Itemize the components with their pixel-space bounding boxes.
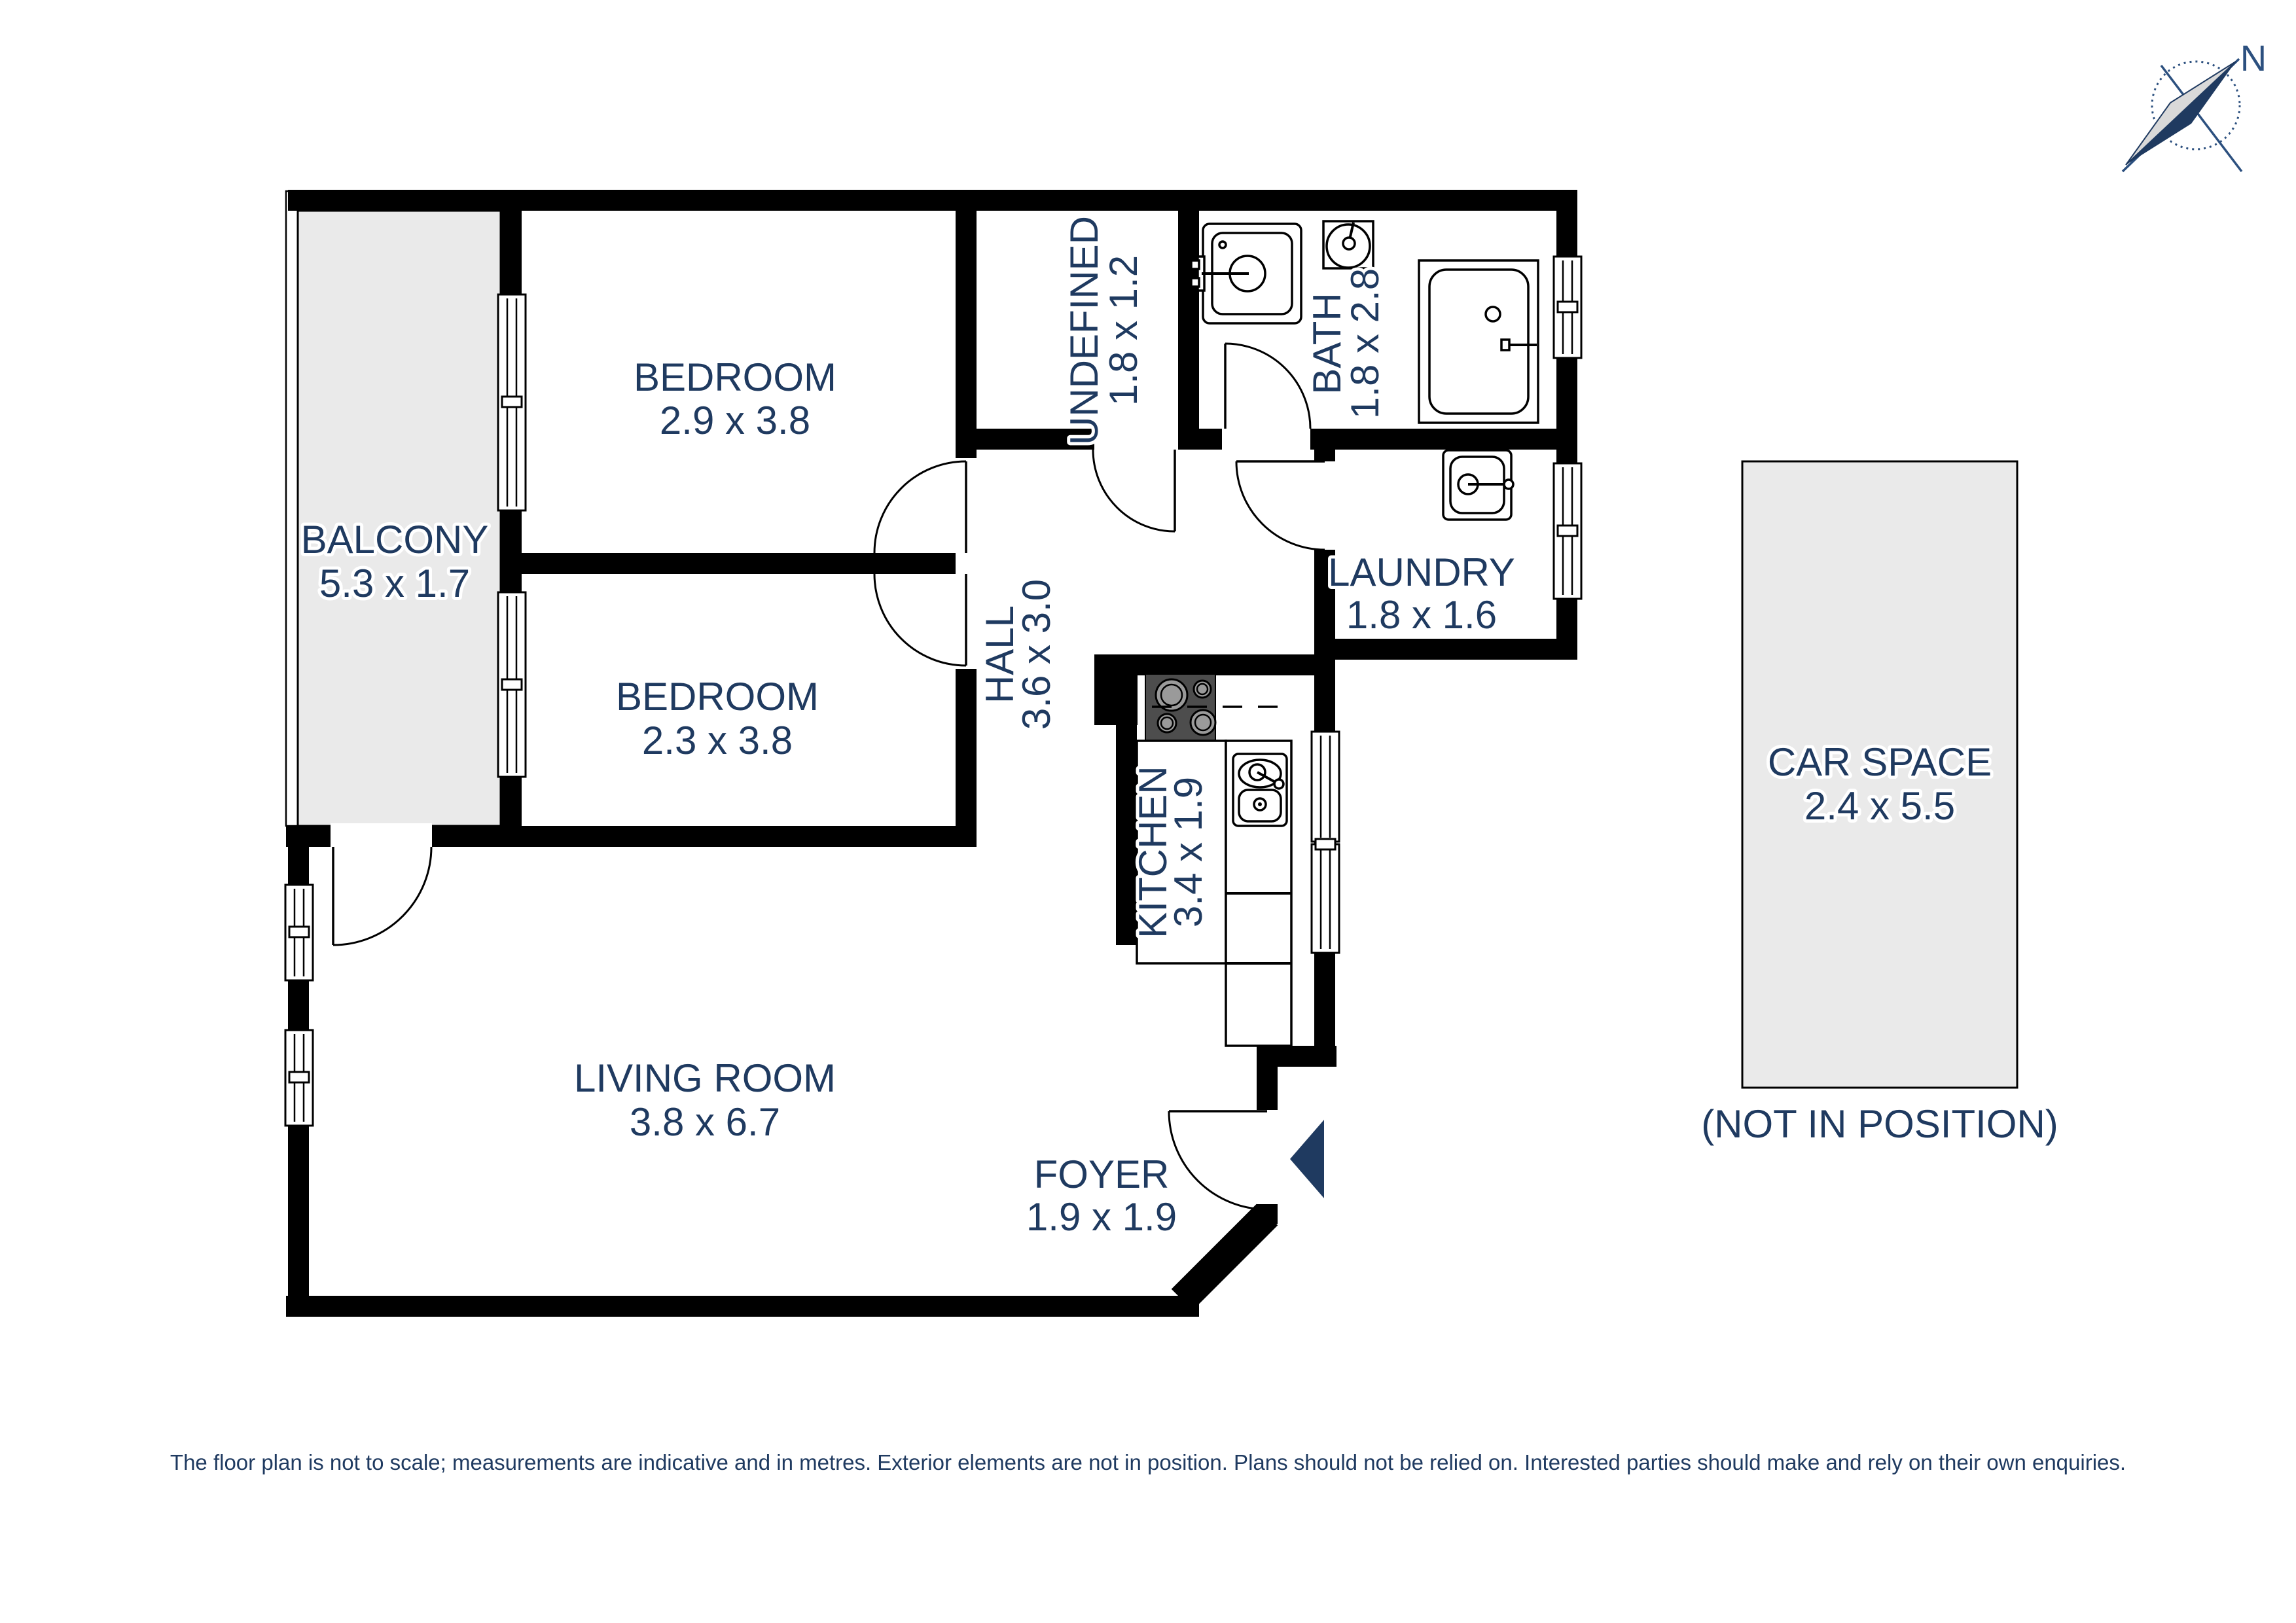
svg-text:3.8 x 6.7: 3.8 x 6.7 <box>630 1100 780 1144</box>
window-laundry <box>1554 463 1581 599</box>
north-label: N <box>2240 37 2267 79</box>
door-bath <box>1225 344 1310 429</box>
balcony-outer-rail <box>286 191 298 826</box>
room-label-hall: HALL 3.6 x 3.0 <box>978 579 1058 730</box>
room-label-kitchen: KITCHEN 3.4 x 1.9 <box>1131 766 1210 938</box>
svg-text:BATH: BATH <box>1305 293 1349 395</box>
room-label-bath: BATH 1.8 x 2.8 <box>1305 268 1387 419</box>
door-laundry <box>1236 461 1325 550</box>
kitchen-sink-fixture <box>1233 754 1287 826</box>
window-kitchen-1 <box>1312 732 1339 842</box>
room-label-balcony: BALCONY 5.3 x 1.7 <box>301 518 489 605</box>
svg-text:3.4 x 1.9: 3.4 x 1.9 <box>1166 777 1210 927</box>
svg-text:LIVING ROOM: LIVING ROOM <box>574 1056 836 1100</box>
svg-text:5.3 x 1.7: 5.3 x 1.7 <box>319 562 470 605</box>
vanity-sink-fixture <box>1191 224 1301 323</box>
compass: N <box>2123 37 2267 171</box>
svg-text:1.8 x 2.8: 1.8 x 2.8 <box>1343 268 1387 419</box>
svg-text:LAUNDRY: LAUNDRY <box>1328 550 1515 594</box>
door-bedroom2 <box>874 574 966 666</box>
car-space-note: (NOT IN POSITION) <box>1701 1102 2058 1146</box>
svg-text:3.6 x 3.0: 3.6 x 3.0 <box>1014 579 1058 730</box>
svg-text:FOYER: FOYER <box>1034 1152 1170 1196</box>
svg-text:2.3 x 3.8: 2.3 x 3.8 <box>642 719 793 762</box>
floor-plan-canvas: N BALCONY 5.3 x 1.7 BEDROOM 2.9 x 3.8 BE… <box>0 0 2296 1623</box>
bathtub-fixture <box>1419 260 1538 423</box>
svg-text:BEDROOM: BEDROOM <box>634 355 836 399</box>
svg-text:2.9 x 3.8: 2.9 x 3.8 <box>660 399 810 442</box>
basin-fixture <box>1323 221 1373 268</box>
window-bedroom1 <box>498 294 526 510</box>
room-label-foyer: FOYER 1.9 x 1.9 <box>1026 1152 1177 1239</box>
door-balcony <box>333 847 431 945</box>
entry-arrow-icon <box>1290 1120 1324 1198</box>
svg-text:1.8 x 1.6: 1.8 x 1.6 <box>1346 593 1497 637</box>
door-entry <box>1169 1111 1267 1209</box>
floor-plan-page: N BALCONY 5.3 x 1.7 BEDROOM 2.9 x 3.8 BE… <box>0 0 2296 1623</box>
window-kitchen-2 <box>1312 839 1339 953</box>
window-bedroom2 <box>498 592 526 777</box>
laundry-sink-fixture <box>1443 450 1513 520</box>
room-label-undefined: UNDEFINED 1.8 x 1.2 <box>1062 216 1145 445</box>
svg-text:CAR SPACE: CAR SPACE <box>1768 740 1992 784</box>
svg-text:BALCONY: BALCONY <box>301 518 489 562</box>
door-bedroom1 <box>874 461 966 553</box>
svg-text:1.8 x 1.2: 1.8 x 1.2 <box>1102 255 1145 406</box>
svg-text:UNDEFINED: UNDEFINED <box>1062 216 1106 445</box>
room-label-living-room: LIVING ROOM 3.8 x 6.7 <box>574 1056 836 1144</box>
svg-text:BEDROOM: BEDROOM <box>616 675 819 719</box>
svg-text:1.9 x 1.9: 1.9 x 1.9 <box>1026 1195 1177 1239</box>
disclaimer-text: The floor plan is not to scale; measurem… <box>170 1450 2126 1474</box>
window-living-2 <box>285 1030 313 1126</box>
door-undefined <box>1093 450 1175 531</box>
svg-text:2.4 x 5.5: 2.4 x 5.5 <box>1804 784 1955 828</box>
room-label-laundry: LAUNDRY 1.8 x 1.6 <box>1328 550 1515 637</box>
window-bath <box>1554 257 1581 358</box>
window-living-1 <box>285 885 313 980</box>
room-label-bedroom1: BEDROOM 2.9 x 3.8 <box>634 355 836 442</box>
room-label-bedroom2: BEDROOM 2.3 x 3.8 <box>616 675 819 762</box>
